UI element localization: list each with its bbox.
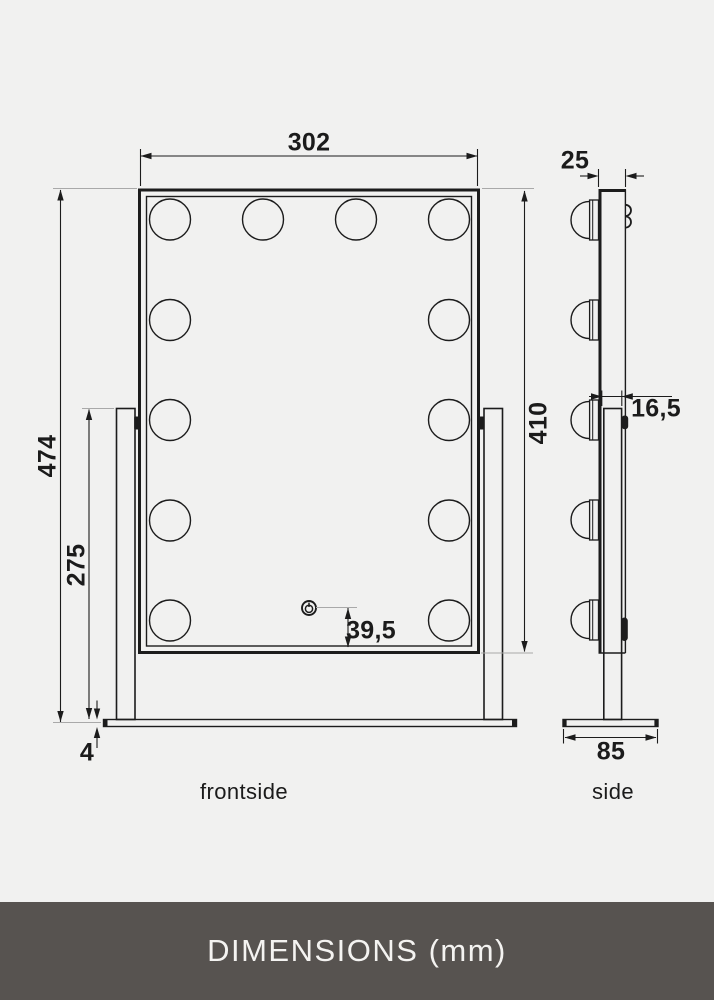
- dim-width-label: 302: [288, 129, 331, 158]
- back-knob: [625, 205, 631, 216]
- dim-button-offset-label: 39,5: [346, 617, 396, 646]
- mirror-frame-inner: [147, 197, 472, 647]
- left-pivot-hinge: [134, 417, 139, 430]
- right-pivot-hinge: [479, 417, 484, 430]
- dim-mirror-depth-label: 25: [561, 147, 589, 176]
- bulb: [150, 199, 191, 240]
- front-view-caption: frontside: [200, 779, 288, 805]
- side-bulb: [571, 500, 598, 540]
- base-plate-end-cap: [563, 720, 567, 726]
- footer-bar: DIMENSIONS (mm): [0, 902, 714, 1000]
- front-view-drawing: [104, 190, 517, 727]
- dim-mirror-height-label: 410: [525, 402, 554, 445]
- bulb: [429, 300, 470, 341]
- base-plate-end-cap: [104, 720, 108, 726]
- bulb: [150, 500, 191, 541]
- bulb: [150, 400, 191, 441]
- side-base-plate: [563, 720, 658, 727]
- back-knob: [625, 216, 631, 227]
- footer-title: DIMENSIONS (mm): [207, 933, 507, 969]
- side-view-drawing: [563, 189, 658, 727]
- bulb: [150, 600, 191, 641]
- drawing-canvas: [0, 0, 714, 1000]
- side-bulb: [571, 600, 599, 640]
- dim-stand-height-label: 275: [63, 544, 92, 587]
- base-plate: [104, 720, 517, 727]
- bulb: [243, 199, 284, 240]
- bulb: [429, 600, 470, 641]
- dim-total-height-label: 474: [34, 435, 63, 478]
- side-stand-leg: [604, 409, 622, 720]
- side-pivot-hinge: [622, 416, 629, 430]
- dimension-diagram: 302 474 275 4 410 39,5 25 16,5 85 fronts…: [0, 0, 714, 1000]
- bulb: [429, 400, 470, 441]
- bulb: [429, 500, 470, 541]
- side-view-caption: side: [592, 779, 634, 805]
- left-stand-leg: [117, 409, 136, 720]
- dim-base-depth-label: 85: [597, 738, 625, 767]
- back-housing: [621, 618, 628, 642]
- side-bulb: [571, 400, 599, 440]
- dim-stand-depth-label: 16,5: [631, 395, 681, 424]
- side-bulb: [571, 300, 599, 340]
- dim-base-thickness-label: 4: [80, 739, 94, 768]
- bulb: [150, 300, 191, 341]
- right-stand-leg: [484, 409, 503, 720]
- bulb: [336, 199, 377, 240]
- base-plate-end-cap: [654, 720, 658, 726]
- side-bulb: [571, 200, 599, 240]
- power-button-icon: [302, 601, 316, 615]
- bulb: [429, 199, 470, 240]
- base-plate-end-cap: [512, 720, 516, 726]
